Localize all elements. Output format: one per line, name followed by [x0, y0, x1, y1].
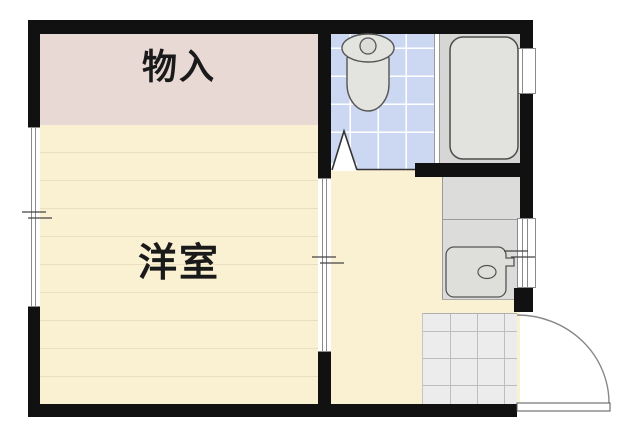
room-label-western: 洋室 [76, 244, 282, 283]
washbasin-icon [446, 247, 514, 297]
entry-door-icon [517, 315, 610, 411]
floor-plan-canvas: 物入 洋室 [0, 0, 640, 437]
folding-door-icon [332, 131, 357, 170]
bathtub-icon [450, 37, 518, 159]
room-label-storage: 物入 [76, 50, 282, 85]
toilet-icon [342, 34, 394, 111]
